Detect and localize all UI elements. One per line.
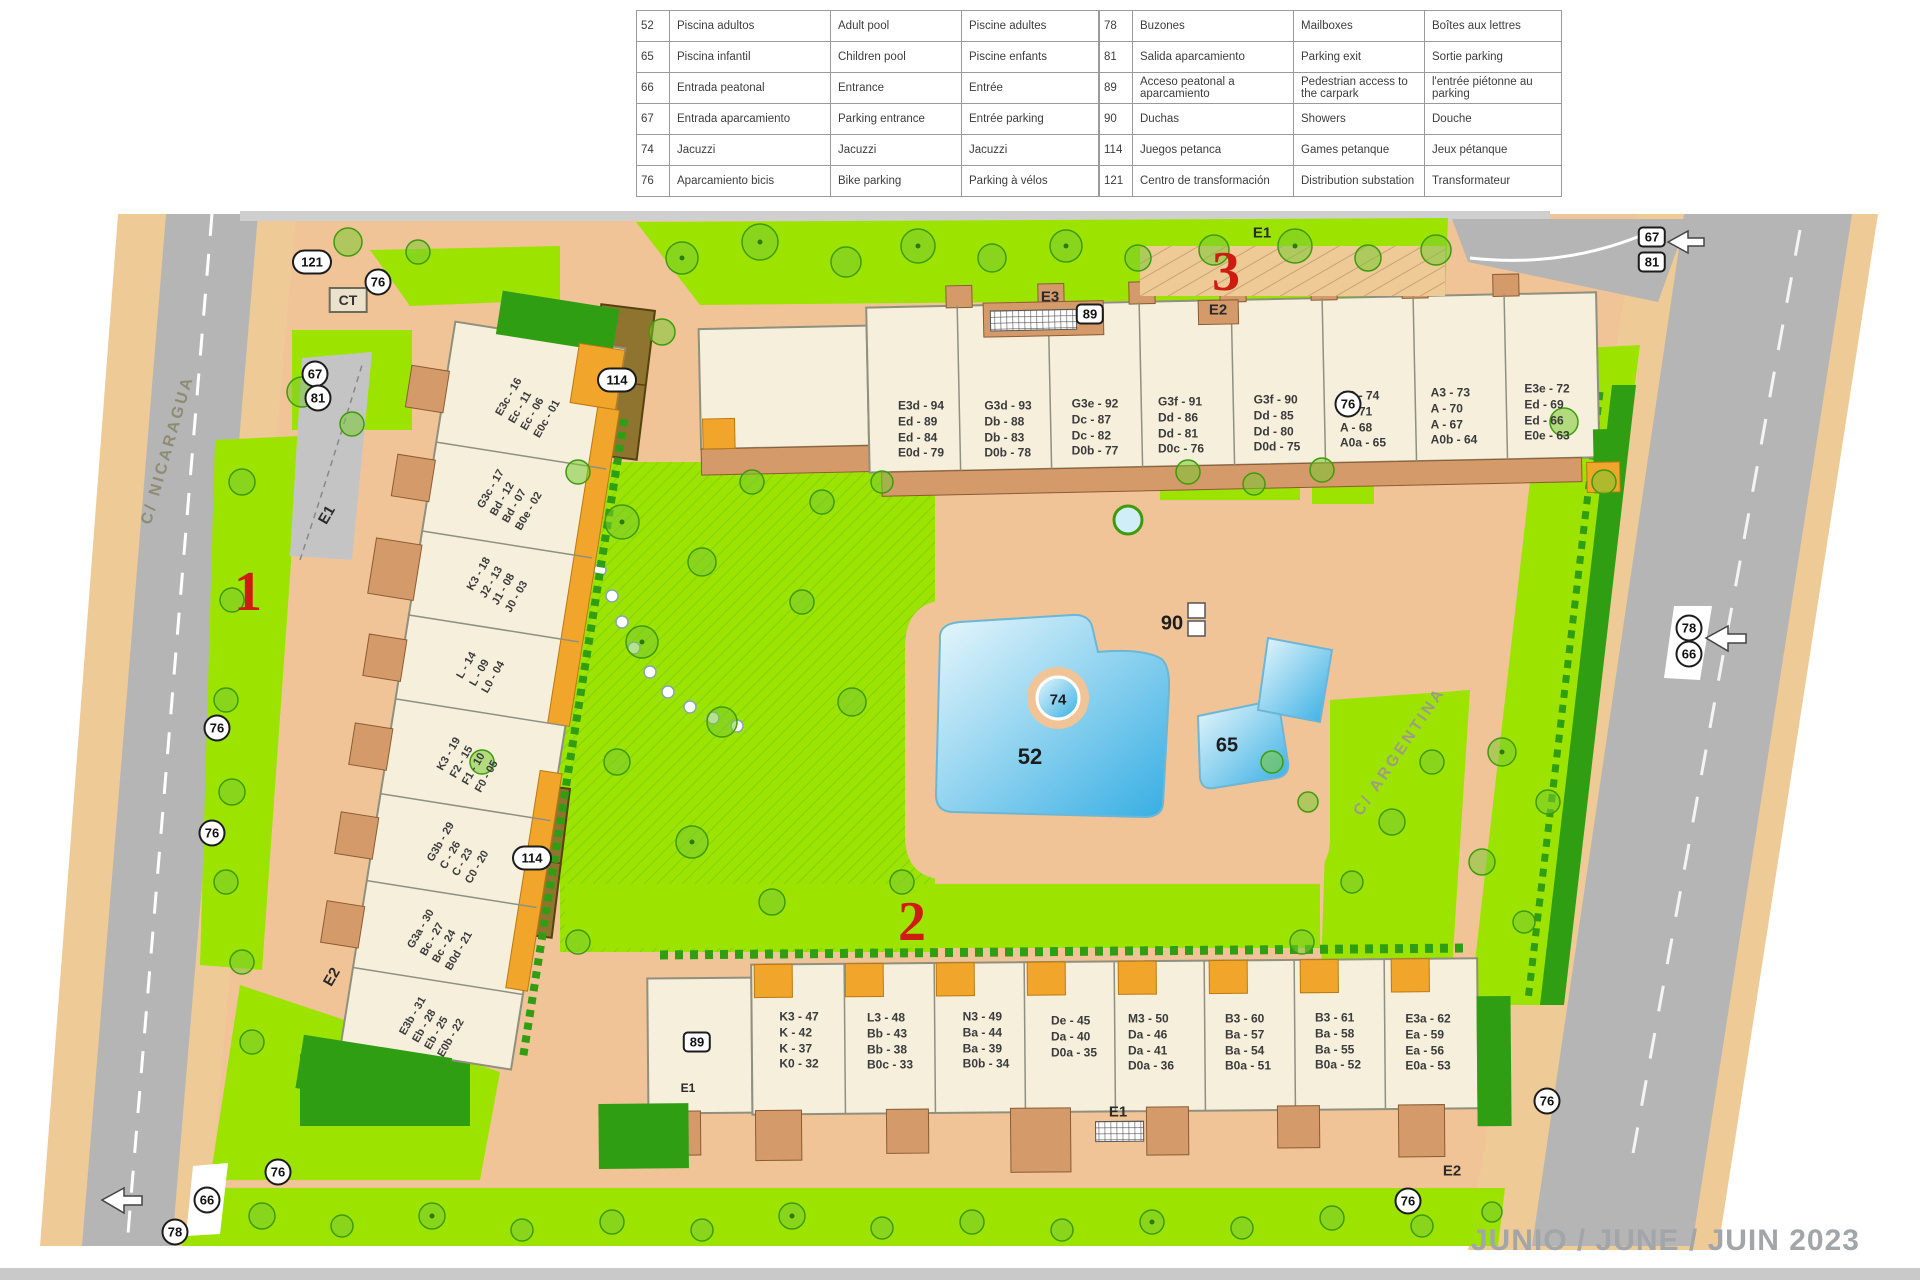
- block-label-south-2: L3 - 48 Bb - 43 Bb - 38 B0c - 33: [867, 1010, 913, 1073]
- legend-num: 74: [637, 135, 670, 166]
- legend-fr: Sortie parking: [1425, 42, 1562, 73]
- legend-row: 66Entrada peatonalEntranceEntrée: [637, 73, 1099, 104]
- legend-num: 52: [637, 11, 670, 42]
- marker-bike-parking: 76: [1335, 391, 1362, 418]
- block-label-north-5: G3f - 90 Dd - 85 Dd - 80 D0d - 75: [1254, 392, 1301, 455]
- fountain: [1114, 506, 1142, 534]
- marker-parking-entrance-east: 67: [1638, 227, 1666, 248]
- legend-en: Distribution substation: [1294, 166, 1425, 197]
- core-label-e2-southeast: E2: [1443, 1163, 1461, 1180]
- legend-fr: Boîtes aux lettres: [1425, 11, 1562, 42]
- legend-row: 121Centro de transformaciónDistribution …: [1100, 166, 1562, 197]
- legend-en: Parking entrance: [831, 104, 962, 135]
- legend-es: Piscina adultos: [670, 11, 831, 42]
- legend-en: Children pool: [831, 42, 962, 73]
- marker-substation: 121: [292, 250, 332, 275]
- core-label-e1-south: E1: [1109, 1104, 1127, 1121]
- legend-fr: Jacuzzi: [962, 135, 1099, 166]
- marker-bike-parking: 76: [204, 715, 231, 742]
- block-label-south-8: E3a - 62 Ea - 59 Ea - 56 E0a - 53: [1405, 1011, 1450, 1074]
- legend-fr: l'entrée piétonne au parking: [1425, 73, 1562, 104]
- legend-en: Bike parking: [831, 166, 962, 197]
- bottom-rule: [0, 1268, 1920, 1280]
- legend-fr: Piscine adultes: [962, 11, 1099, 42]
- legend-es: Jacuzzi: [670, 135, 831, 166]
- core-label-e1-southwest: E1: [681, 1081, 696, 1095]
- marker-entrance-west: 66: [194, 1187, 221, 1214]
- legend-row: 52Piscina adultosAdult poolPiscine adult…: [637, 11, 1099, 42]
- legend-fr: Transformateur: [1425, 166, 1562, 197]
- block-label-south-7: B3 - 61 Ba - 58 Ba - 55 B0a - 52: [1315, 1010, 1361, 1073]
- block-label-north-8: E3e - 72 Ed - 69 Ed - 66 E0e - 63: [1524, 381, 1569, 444]
- marker-mailboxes-west: 78: [162, 1219, 189, 1246]
- legend-row: 67Entrada aparcamientoParking entranceEn…: [637, 104, 1099, 135]
- legend-row: 89Acceso peatonal a aparcamientoPedestri…: [1100, 73, 1562, 104]
- legend-row: 65Piscina infantilChildren poolPiscine e…: [637, 42, 1099, 73]
- block-label-north-7: A3 - 73 A - 70 A - 67 A0b - 64: [1431, 385, 1478, 448]
- legend-row: 76Aparcamiento bicisBike parkingParking …: [637, 166, 1099, 197]
- legend-es: Entrada peatonal: [670, 73, 831, 104]
- marker-bike-parking: 76: [365, 269, 392, 296]
- marker-bike-parking: 76: [199, 820, 226, 847]
- marker-children-pool: 65: [1216, 735, 1238, 758]
- legend-fr: Entrée parking: [962, 104, 1099, 135]
- marker-petanque-south: 114: [512, 846, 552, 871]
- marker-bike-parking: 76: [1534, 1088, 1561, 1115]
- marker-bike-parking: 76: [265, 1159, 292, 1186]
- legend-num: 81: [1100, 42, 1133, 73]
- legend-num: 121: [1100, 166, 1133, 197]
- marker-adult-pool: 52: [1018, 744, 1042, 770]
- legend-es: Entrada aparcamiento: [670, 104, 831, 135]
- legend-es: Acceso peatonal a aparcamiento: [1133, 73, 1294, 104]
- children-pool: [1198, 702, 1288, 789]
- legend-num: 114: [1100, 135, 1133, 166]
- legend-row: 81Salida aparcamientoParking exitSortie …: [1100, 42, 1562, 73]
- block-label-south-3: N3 - 49 Ba - 44 Ba - 39 B0b - 34: [963, 1009, 1010, 1072]
- legend-row: 90DuchasShowersDouche: [1100, 104, 1562, 135]
- legend-row: 74JacuzziJacuzziJacuzzi: [637, 135, 1099, 166]
- legend-en: Showers: [1294, 104, 1425, 135]
- block-label-north-4: G3f - 91 Dd - 86 Dd - 81 D0c - 76: [1158, 394, 1204, 457]
- shower-box: [1188, 621, 1205, 636]
- legend-table-left: 52Piscina adultosAdult poolPiscine adult…: [636, 10, 1099, 197]
- block-label-south-6: B3 - 60 Ba - 57 Ba - 54 B0a - 51: [1225, 1011, 1271, 1074]
- marker-jacuzzi: 74: [1050, 692, 1067, 709]
- legend-fr: Piscine enfants: [962, 42, 1099, 73]
- legend-es: Buzones: [1133, 11, 1294, 42]
- site-plan-page: 52Piscina adultosAdult poolPiscine adult…: [0, 0, 1920, 1280]
- legend-en: Adult pool: [831, 11, 962, 42]
- legend-num: 89: [1100, 73, 1133, 104]
- block-label-north-1: E3d - 94 Ed - 89 Ed - 84 E0d - 79: [898, 398, 944, 461]
- legend-num: 67: [637, 104, 670, 135]
- legend-fr: Douche: [1425, 104, 1562, 135]
- zone-number-2: 2: [898, 890, 926, 954]
- block-label-south-5: M3 - 50 Da - 46 Da - 41 D0a - 36: [1128, 1011, 1174, 1074]
- legend-en: Parking exit: [1294, 42, 1425, 73]
- mailboxes-south: [1096, 1121, 1144, 1141]
- marker-pedestrian-carpark-access-south: 89: [683, 1032, 711, 1053]
- legend-es: Piscina infantil: [670, 42, 831, 73]
- legend-es: Salida aparcamiento: [1133, 42, 1294, 73]
- core-label-e1-northeast: E1: [1253, 225, 1271, 242]
- legend-en: Pedestrian access to the carpark: [1294, 73, 1425, 104]
- legend-es: Duchas: [1133, 104, 1294, 135]
- zone-number-1: 1: [234, 560, 262, 624]
- legend-num: 76: [637, 166, 670, 197]
- core-label-e3: E3: [1041, 289, 1059, 306]
- legend-es: Aparcamiento bicis: [670, 166, 831, 197]
- legend-num: 90: [1100, 104, 1133, 135]
- legend-row: 78BuzonesMailboxesBoîtes aux lettres: [1100, 11, 1562, 42]
- block-label-north-2: G3d - 93 Db - 88 Db - 83 D0b - 78: [984, 398, 1031, 461]
- block-label-south-4: De - 45 Da - 40 D0a - 35: [1051, 1013, 1097, 1060]
- block-label-north-3: G3e - 92 Dc - 87 Dc - 82 D0b - 77: [1072, 396, 1119, 459]
- legend-row: 114Juegos petancaGames petanqueJeux péta…: [1100, 135, 1562, 166]
- marker-pedestrian-carpark-access-north: 89: [1076, 304, 1104, 325]
- marker-bike-parking: 76: [1395, 1188, 1422, 1215]
- legend-es: Juegos petanca: [1133, 135, 1294, 166]
- lap-pool: [1258, 638, 1332, 722]
- date-stamp: JUNIO / JUNE / JUIN 2023: [1340, 1224, 1860, 1258]
- legend-table-right: 78BuzonesMailboxesBoîtes aux lettres 81S…: [1099, 10, 1562, 197]
- marker-mailboxes-east: 78: [1676, 615, 1703, 642]
- legend-num: 65: [637, 42, 670, 73]
- shower-box: [1188, 603, 1205, 618]
- legend-en: Games petanque: [1294, 135, 1425, 166]
- marker-petanque-north: 114: [597, 368, 637, 393]
- marker-parking-exit-west: 81: [305, 385, 332, 412]
- legend-num: 66: [637, 73, 670, 104]
- legend-en: Mailboxes: [1294, 11, 1425, 42]
- marker-showers: 90: [1161, 613, 1183, 636]
- marker-parking-exit-east: 81: [1638, 252, 1666, 273]
- marker-parking-entrance-west: 67: [302, 361, 329, 388]
- legend-fr: Entrée: [962, 73, 1099, 104]
- block-label-south-1: K3 - 47 K - 42 K - 37 K0 - 32: [779, 1009, 818, 1072]
- substation-box: CT: [329, 287, 368, 313]
- legend-es: Centro de transformación: [1133, 166, 1294, 197]
- legend-fr: Parking à vélos: [962, 166, 1099, 197]
- marker-entrance-east: 66: [1676, 641, 1703, 668]
- zone-number-3: 3: [1212, 240, 1240, 304]
- legend-num: 78: [1100, 11, 1133, 42]
- core-label-e2-north: E2: [1209, 302, 1227, 319]
- legend: 52Piscina adultosAdult poolPiscine adult…: [636, 10, 1562, 197]
- legend-fr: Jeux pétanque: [1425, 135, 1562, 166]
- mailboxes-north: [990, 309, 1076, 331]
- legend-en: Entrance: [831, 73, 962, 104]
- legend-en: Jacuzzi: [831, 135, 962, 166]
